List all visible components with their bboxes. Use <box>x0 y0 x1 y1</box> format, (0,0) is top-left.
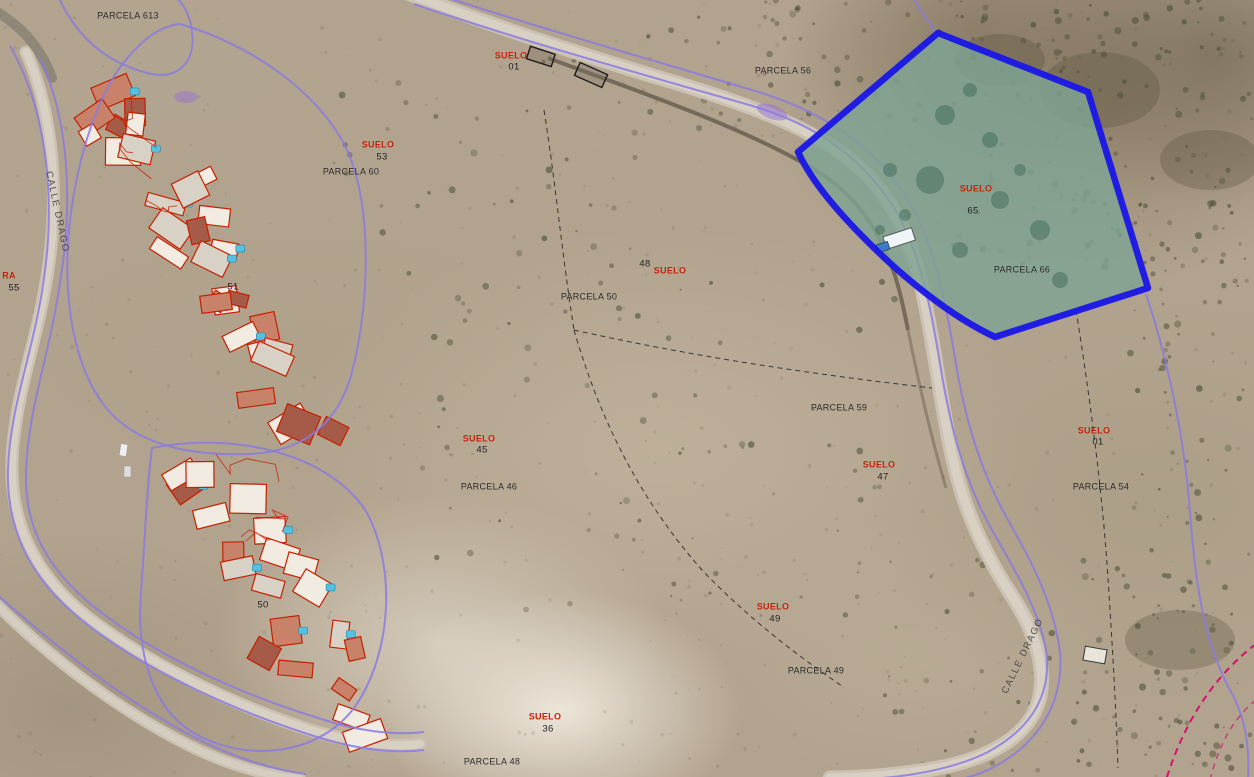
map-overlay <box>0 0 1254 777</box>
vegetation-patch <box>899 209 911 221</box>
swimming-pool <box>151 145 160 152</box>
dashed-boundary <box>544 110 574 330</box>
vegetation-patch <box>1052 272 1068 288</box>
vegetation-patch <box>875 225 885 235</box>
building-footprint <box>344 637 365 662</box>
purple-boundary <box>26 58 424 733</box>
building-footprint <box>251 573 285 598</box>
building-clusters <box>74 73 388 752</box>
dashed-boundary <box>574 330 842 686</box>
swimming-pool <box>252 564 261 571</box>
building-footprint <box>331 678 357 701</box>
building-footprint <box>318 416 349 445</box>
vegetation-patch <box>1030 220 1050 240</box>
cadastral-map-viewport[interactable]: PARCELA 613SUELO01PARCELA 56SUELO53PARCE… <box>0 0 1254 777</box>
structure <box>1083 646 1107 664</box>
purple-boundary <box>912 0 935 32</box>
vehicle <box>124 466 131 477</box>
vegetation-patch <box>1014 164 1026 176</box>
swimming-pool <box>346 631 355 638</box>
vegetation-patch <box>916 166 944 194</box>
vegetation-patch <box>982 132 998 148</box>
swimming-pool <box>299 627 308 634</box>
building-footprint <box>192 502 230 529</box>
swimming-pool <box>256 333 265 340</box>
swimming-pool <box>227 255 236 262</box>
swimming-pool <box>326 584 335 591</box>
building-footprint <box>278 660 314 678</box>
swimming-pool <box>284 526 293 533</box>
vegetation-patch <box>935 105 955 125</box>
building-footprint <box>270 616 302 647</box>
building-footprint <box>186 461 214 487</box>
vegetation-patch <box>991 191 1009 209</box>
vehicle <box>119 444 128 457</box>
street-name-smudge <box>174 91 198 103</box>
dashed-boundary <box>574 330 932 388</box>
vegetation-patch <box>952 242 968 258</box>
vegetation-patch <box>883 163 897 177</box>
building-footprint <box>237 388 276 409</box>
swimming-pool <box>236 245 245 252</box>
vegetation-patch <box>963 83 977 97</box>
dashed-boundary <box>1076 310 1118 768</box>
building-footprint <box>230 484 267 514</box>
building-footprint <box>200 292 233 313</box>
purple-boundary <box>58 0 193 75</box>
swimming-pool <box>130 88 139 95</box>
